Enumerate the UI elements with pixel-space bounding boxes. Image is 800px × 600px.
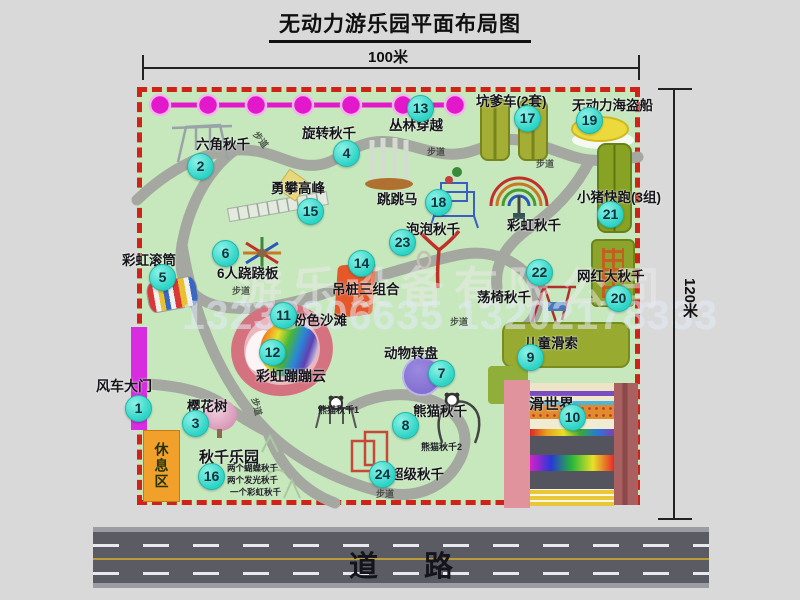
badge-piggy-run: 21	[597, 201, 624, 228]
badge-hex-swing: 2	[187, 153, 214, 180]
slide-world-pink-bar	[504, 380, 530, 508]
label-hanging-piles: 吊桩三组合	[332, 278, 400, 298]
label-piggy-run: 小猪快跑(3组)	[577, 186, 661, 206]
slide-stripe-dark	[530, 471, 614, 489]
label-swing-park-sub1: 两个蝴蝶秋千	[227, 462, 278, 474]
road-label: 道路	[93, 543, 709, 585]
badge-cherry-tree: 3	[182, 410, 209, 437]
badge-chair-swing: 22	[526, 259, 553, 286]
label-panda-swing-2: 熊猫秋千2	[421, 440, 462, 453]
right-dimension-tick-bottom	[658, 518, 692, 520]
badge-panda-swing: 8	[392, 412, 419, 439]
label-pink-beach: 粉色沙滩	[293, 309, 347, 329]
badge-climb-peak: 15	[297, 198, 324, 225]
walkway-label: 步道	[376, 487, 394, 500]
walkway-label: 步道	[450, 315, 468, 328]
label-rainbow-cloud: 彩虹蹦蹦云	[256, 366, 326, 386]
badge-hanging-piles: 14	[348, 250, 375, 277]
badge-swing-park: 16	[198, 463, 225, 490]
badge-jumping-horse: 18	[425, 189, 452, 216]
label-panda-swing-1: 熊猫秋千1	[318, 403, 359, 416]
label-rainbow-swing: 彩虹秋千	[507, 214, 561, 234]
label-windmill-gate: 风车大门	[96, 376, 152, 396]
title-bar: 无动力游乐园平面布局图	[0, 8, 800, 43]
label-climb-peak: 勇攀高峰	[271, 177, 325, 197]
badge-super-swing: 24	[369, 461, 396, 488]
label-animal-turntable: 动物转盘	[384, 342, 438, 362]
label-big-swing: 网红大秋千	[577, 265, 645, 285]
badge-rotating-swing: 4	[333, 140, 360, 167]
top-dimension-tick-left	[142, 55, 144, 80]
slide-stripe-rainbow	[530, 455, 614, 471]
slide-stripe-yellow-waves	[530, 489, 614, 506]
right-dimension-line	[673, 88, 675, 520]
label-panda-swing: 熊猫秋千	[413, 400, 467, 420]
badge-slide-world: 10	[559, 404, 586, 431]
label-jumping-horse: 跳跳马	[377, 188, 418, 208]
badge-windmill-gate: 1	[125, 395, 152, 422]
badge-rainbow-cloud: 12	[259, 339, 286, 366]
walkway-label: 步道	[427, 145, 445, 158]
slide-stripe-dark	[530, 436, 614, 455]
cherry-tree-trunk	[217, 429, 222, 438]
badge-kids-zipline: 9	[517, 344, 544, 371]
page-title: 无动力游乐园平面布局图	[269, 8, 531, 43]
rest-area-label: 休息区	[152, 442, 172, 490]
badge-pirate-ship: 19	[576, 107, 603, 134]
label-chair-swing: 荡椅秋千	[477, 286, 531, 306]
top-dimension-tick-right	[638, 55, 640, 80]
badge-rainbow-roller: 5	[149, 264, 176, 291]
badge-jungle-crossing: 13	[407, 95, 434, 122]
label-hex-swing: 六角秋千	[196, 133, 250, 153]
top-dimension-label: 100米	[368, 46, 408, 67]
badge-big-swing: 20	[605, 285, 632, 312]
badge-pink-beach: 11	[270, 302, 297, 329]
label-swing-park-sub2: 两个发光秋千	[227, 474, 278, 486]
label-swing-park-sub3: 一个彩虹秋千	[230, 486, 281, 498]
right-dimension-tick-top	[658, 88, 692, 90]
top-dimension-line	[142, 67, 640, 69]
slide-stripe	[530, 383, 614, 391]
badge-animal-turntable: 7	[428, 360, 455, 387]
walkway-label: 步道	[232, 284, 250, 297]
badge-bubble-swing: 23	[389, 229, 416, 256]
label-super-swing: 超级秋千	[390, 463, 444, 483]
playground-plan: 无动力游乐园平面布局图 100米 120米 游乐设备有限公司 132338066…	[0, 0, 800, 600]
badge-pit-cars: 17	[514, 105, 541, 132]
right-dimension-label: 120米	[679, 278, 700, 318]
slide-world-maroon-bar	[612, 383, 638, 505]
badge-seesaw-6p: 6	[212, 240, 239, 267]
label-rotating-swing: 旋转秋千	[302, 122, 356, 142]
walkway-label: 步道	[536, 157, 554, 170]
road: 道路	[93, 527, 709, 588]
rest-area-box: 休息区	[143, 430, 180, 502]
